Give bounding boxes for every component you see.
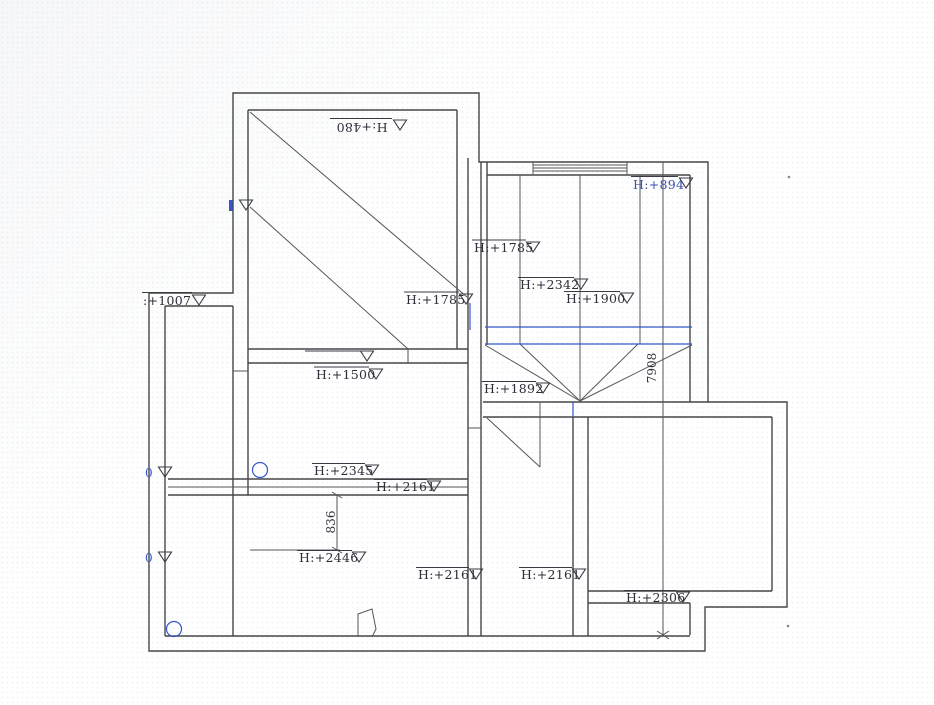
zero-marker-lower: 0 — [145, 551, 172, 565]
level-marker-h480: H:+480 — [330, 119, 407, 136]
svg-text:H:+2342: H:+2342 — [520, 277, 580, 292]
level-marker-h2446: H:+2446 — [297, 550, 366, 565]
svg-text:H:+2161: H:+2161 — [376, 479, 436, 494]
svg-text:H:+1785: H:+1785 — [406, 292, 466, 307]
dimension-836: 836 — [324, 511, 338, 534]
svg-text:H:+2161: H:+2161 — [521, 567, 581, 582]
level-marker-unlabeled — [305, 351, 374, 361]
svg-text:H:+1785: H:+1785 — [474, 240, 534, 255]
svg-text:H:+2446: H:+2446 — [299, 550, 359, 565]
level-marker-h1785-right: H:+1785 — [472, 240, 540, 255]
svg-text:H:+1500: H:+1500 — [316, 367, 376, 382]
level-marker-h1900: H:+1900 — [564, 291, 634, 306]
level-marker-h894: H:+894 — [631, 177, 693, 193]
level-triangle-icon — [193, 295, 206, 305]
level-marker-h2342: H:+2342 — [518, 277, 588, 292]
column-circle — [167, 622, 182, 637]
level-marker-h2306: H:+2306 — [624, 590, 690, 605]
floor-plan-canvas: 7908 836 H:+480 H:+894 :+1007 H:+1785 — [0, 0, 934, 705]
zero-marker-upper: 0 — [145, 466, 172, 480]
svg-text:H:+1892: H:+1892 — [484, 381, 544, 396]
svg-text:0: 0 — [145, 466, 153, 480]
wall-level-marker — [240, 200, 253, 210]
dimensions: 7908 836 — [324, 162, 669, 639]
level-marker-h2161-lower-right: H:+2161 — [519, 567, 586, 582]
svg-text:H:+894: H:+894 — [633, 177, 684, 192]
svg-text::+1007: :+1007 — [143, 293, 191, 308]
level-triangle-icon — [240, 200, 253, 210]
level-marker-h1785-left: H:+1785 — [404, 292, 473, 307]
door-leaf — [358, 609, 376, 637]
level-marker-h2161-lower-left: H:+2161 — [416, 567, 483, 582]
column-circle — [253, 463, 268, 478]
level-marker-h2345: H:+2345 — [312, 463, 379, 478]
svg-text:H:+480: H:+480 — [336, 120, 387, 135]
stairs — [485, 162, 692, 402]
level-marker-h1500: H:+1500 — [314, 367, 383, 382]
level-marker-h1892: H:+1892 — [482, 381, 550, 396]
wall-marker-tick — [229, 200, 233, 211]
window-hatch-icon — [533, 162, 627, 175]
level-triangle-icon — [394, 120, 407, 130]
floor-plan-page: 7908 836 H:+480 H:+894 :+1007 H:+1785 — [0, 0, 934, 705]
level-marker-h2161-upper: H:+2161 — [374, 479, 441, 494]
level-markers: H:+480 H:+894 :+1007 H:+1785 H:+1785 H:+… — [142, 119, 693, 606]
svg-text:H:+2306: H:+2306 — [626, 590, 686, 605]
svg-text:H:+2161: H:+2161 — [418, 567, 478, 582]
svg-text:H:+2345: H:+2345 — [314, 463, 374, 478]
dimension-7908: 7908 — [645, 353, 659, 384]
svg-text:H:+1900: H:+1900 — [566, 291, 626, 306]
level-triangle-icon — [361, 351, 374, 361]
svg-text:0: 0 — [145, 551, 153, 565]
